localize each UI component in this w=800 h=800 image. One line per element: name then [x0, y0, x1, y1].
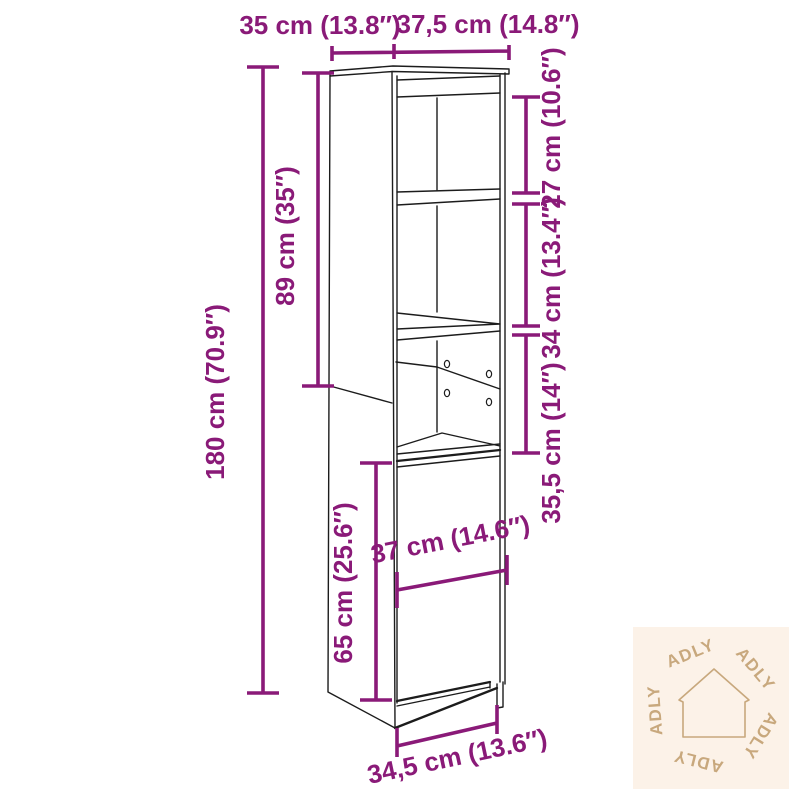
dim-total-height-lines	[247, 67, 279, 693]
cabinet-door	[397, 456, 500, 467]
dim-door-width-lines	[397, 555, 507, 608]
cabinet-top-board	[330, 66, 509, 76]
diagram-svg: 35 cm (13.8″) 37,5 cm (14.8″) 180 cm (70…	[0, 0, 800, 800]
dim-door-height-lines	[360, 463, 392, 700]
dim-bottom-width: 34,5 cm (13.6″)	[365, 705, 550, 790]
cabinet-shelf-2	[397, 313, 500, 340]
dim-label-top-width: 37,5 cm (14.8″)	[396, 9, 579, 39]
pin-hole	[486, 398, 491, 405]
cabinet-base-bottom	[395, 688, 497, 728]
adly-watermark: ADLY ADLY ADLY ADLY ADLY	[633, 627, 789, 789]
cabinet-shelf-1	[397, 189, 500, 205]
dim-total-height: 180 cm (70.9″)	[200, 67, 279, 693]
pin-hole	[444, 389, 449, 396]
dim-label-top-shelf: 27 cm (10.6″)	[536, 47, 566, 208]
pin-hole	[486, 370, 491, 377]
cabinet-door-bottom	[397, 682, 490, 701]
cabinet-top-rail	[397, 76, 500, 97]
dim-label-total-height: 180 cm (70.9″)	[200, 304, 230, 480]
dim-top-lines	[332, 44, 509, 61]
dim-label-door-height: 65 cm (25.6″)	[328, 502, 358, 663]
watermark-brand-text: ADLY	[644, 684, 666, 736]
dim-label-open-niche: 35,5 cm (14″)	[536, 362, 566, 523]
dim-door-height: 65 cm (25.6″)	[328, 463, 392, 700]
dim-upper-section: 89 cm (35″)	[270, 73, 334, 386]
pin-hole	[444, 360, 449, 367]
dimension-annotations: 35 cm (13.8″) 37,5 cm (14.8″) 180 cm (70…	[200, 9, 580, 790]
dim-label-upper-section: 89 cm (35″)	[270, 166, 300, 306]
cabinet-plinth	[397, 682, 503, 708]
dim-top: 35 cm (13.8″) 37,5 cm (14.8″)	[239, 9, 579, 61]
dim-right-stack: 27 cm (10.6″) 34 cm (13.4″) 35,5 cm (14″…	[512, 47, 566, 523]
product-dimension-image: 35 cm (13.8″) 37,5 cm (14.8″) 180 cm (70…	[0, 0, 800, 800]
cabinet-niche-bottom-edge	[397, 450, 500, 461]
dim-label-middle-shelf: 34 cm (13.4″)	[536, 197, 566, 358]
dim-door-width: 37 cm (14.6″)	[368, 509, 532, 608]
dim-label-top-depth: 35 cm (13.8″)	[239, 10, 400, 40]
cabinet-back-seam	[396, 362, 500, 389]
